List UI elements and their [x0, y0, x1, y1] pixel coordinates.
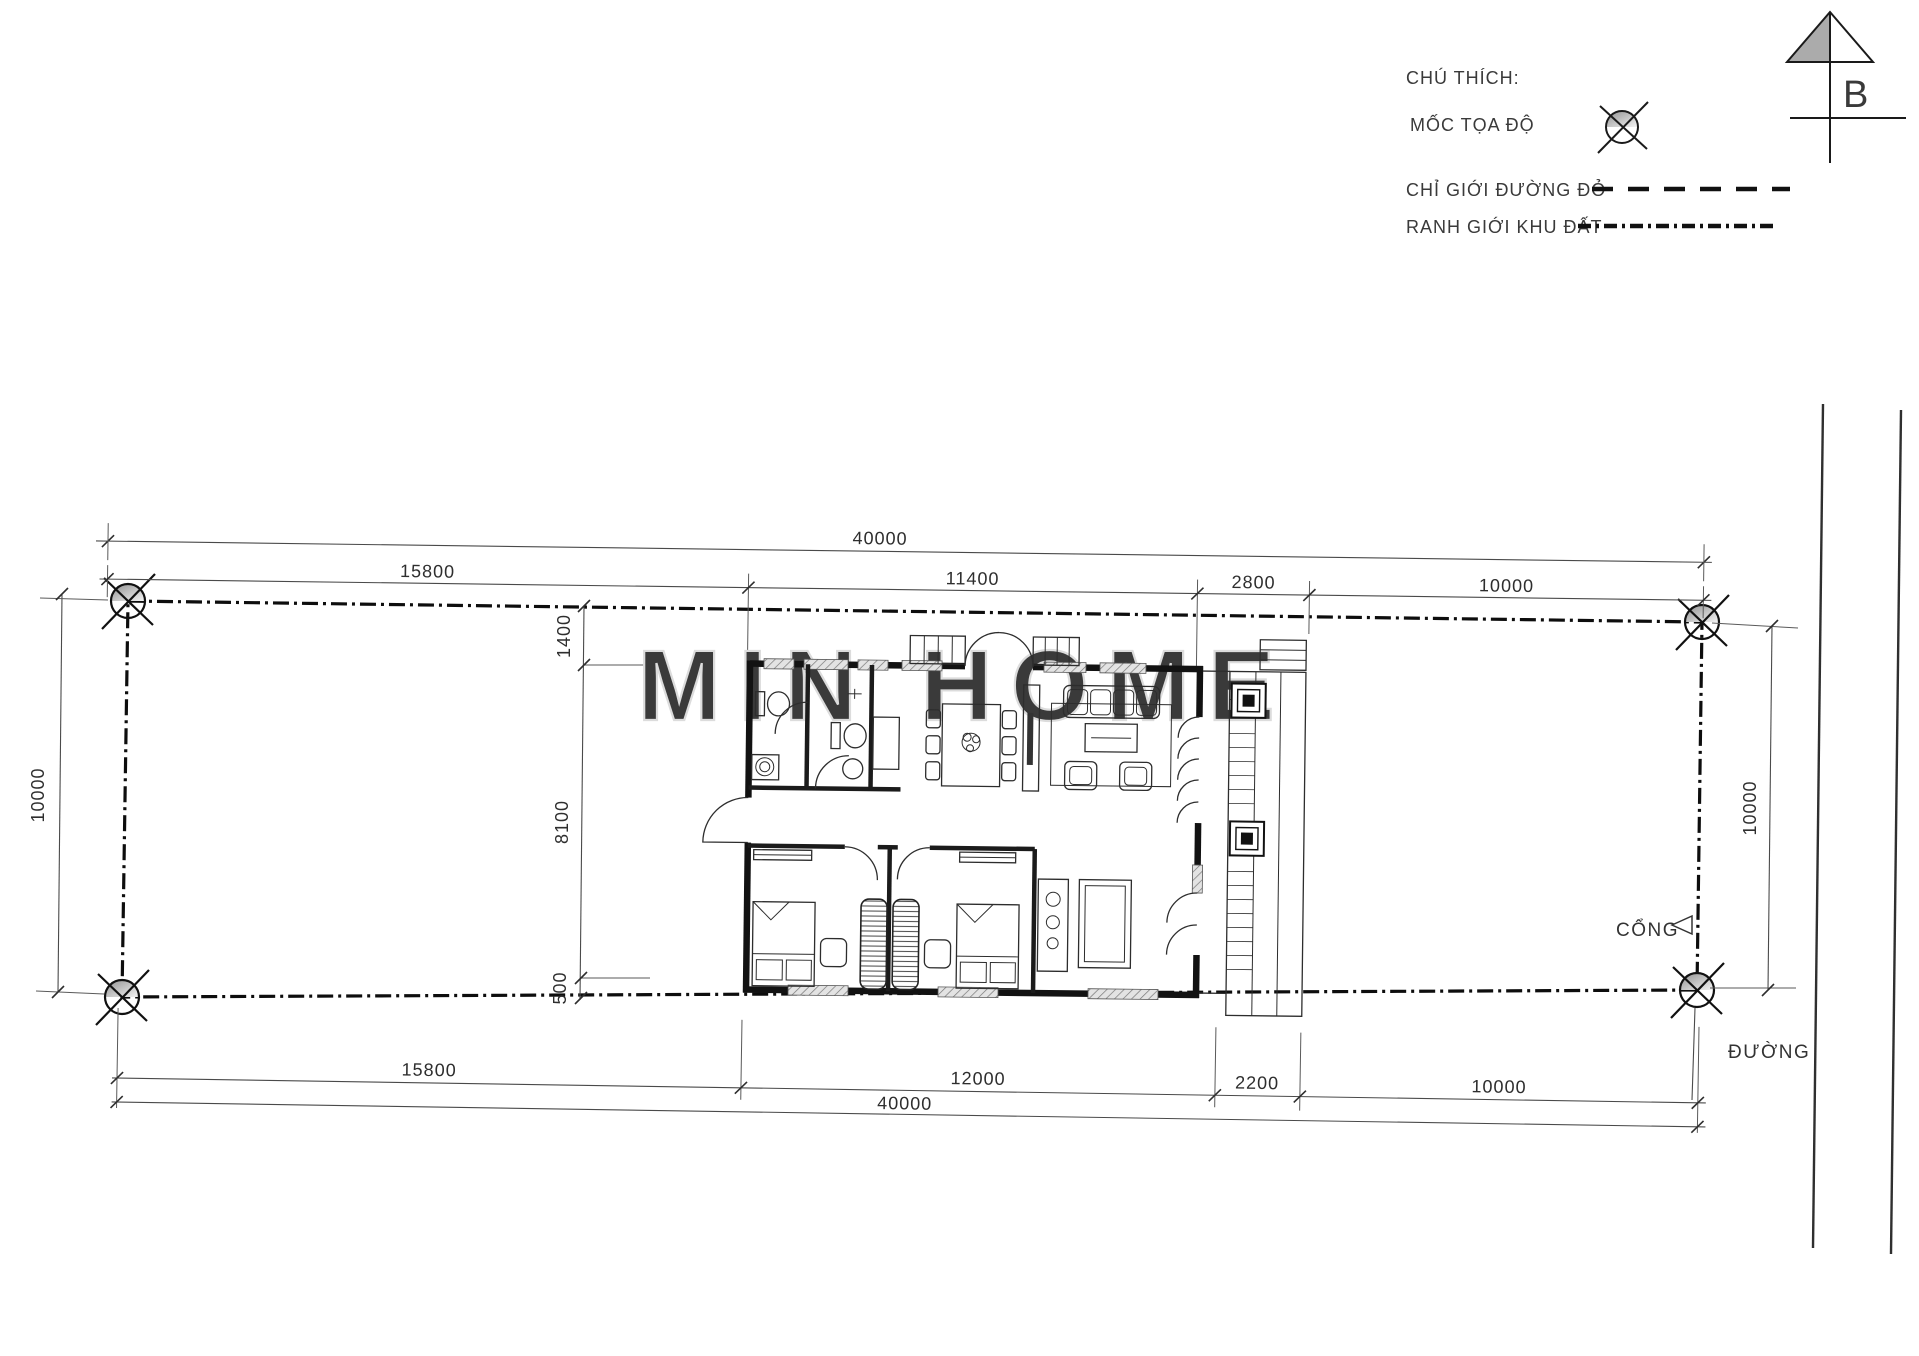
dim-left-side: 10000	[28, 767, 48, 822]
dim-top-seg-2: 11400	[946, 568, 1000, 589]
kitchen-island	[1078, 880, 1131, 969]
bedroom-1	[752, 846, 878, 988]
dim-bottom-seg-4: 10000	[1471, 1076, 1526, 1097]
legend-item-red-line-label: CHỈ GIỚI ĐƯỜNG ĐỎ	[1406, 179, 1606, 200]
dim-house-depth: 8100	[552, 800, 572, 844]
dim-right-side: 10000	[1740, 780, 1760, 835]
burner	[1046, 892, 1060, 906]
corner-marker-bottom-right	[1671, 963, 1724, 1100]
legend: CHÚ THÍCH: MỐC TỌA ĐỘ CHỈ GIỚI ĐƯỜNG ĐỎ …	[1406, 67, 1790, 237]
pillow	[960, 962, 986, 982]
bedroom1-door-arc	[844, 847, 877, 880]
road-edge-line-right	[1891, 410, 1901, 1254]
legend-item-land-boundary-label: RANH GIỚI KHU ĐẤT	[1406, 216, 1602, 237]
dimension-right: 10000	[1710, 620, 1798, 996]
dim-setback-top: 1400	[554, 614, 574, 658]
ornate-column	[1231, 683, 1265, 717]
site-plan-canvas: CHÚ THÍCH: MỐC TỌA ĐỘ CHỈ GIỚI ĐƯỜNG ĐỎ …	[0, 0, 1919, 1356]
window	[1044, 662, 1086, 673]
dim-setback-bottom: 500	[550, 971, 570, 1004]
dim-bottom-seg-2: 12000	[950, 1068, 1005, 1089]
desk-chair	[924, 940, 950, 968]
dim-bottom-seg-1: 15800	[401, 1059, 456, 1080]
window	[804, 659, 848, 670]
gate-label: CỔNG	[1616, 919, 1679, 941]
corner-marker-bottom-left	[96, 970, 149, 1025]
kitchen-counter	[1037, 879, 1068, 971]
north-arrow: B	[1787, 12, 1906, 163]
burner	[1047, 938, 1058, 949]
corner-marker-top-right	[1676, 595, 1729, 650]
legend-title: CHÚ THÍCH:	[1406, 67, 1520, 88]
bed	[752, 902, 815, 987]
road-edge-line-left	[1813, 404, 1823, 1248]
dimension-left: 10000	[28, 588, 108, 998]
bedroom2-door-arc	[897, 847, 929, 879]
window	[1100, 663, 1146, 674]
dim-top-seg-3: 2800	[1231, 572, 1275, 593]
pillow	[990, 963, 1015, 983]
tv	[1027, 713, 1034, 765]
sink	[843, 759, 863, 779]
gate-label-group: CỔNG	[1616, 916, 1692, 941]
legend-item-survey-marker-label: MỐC TỌA ĐỘ	[1410, 114, 1535, 135]
chair	[1002, 763, 1016, 781]
dim-top-seg-1: 15800	[400, 561, 455, 582]
dim-top-seg-4: 10000	[1479, 575, 1534, 596]
ornate-column	[1230, 821, 1264, 855]
window	[764, 659, 794, 669]
north-label: B	[1843, 74, 1868, 116]
bed	[956, 904, 1019, 989]
kitchen	[1037, 879, 1131, 972]
pillow	[756, 960, 782, 980]
dimension-bottom: 15800 12000 2200 10000 40000	[111, 1002, 1707, 1133]
dim-bottom-seg-3: 2200	[1235, 1073, 1279, 1094]
survey-marker-icon	[1598, 102, 1648, 153]
window	[1192, 865, 1202, 893]
desk-chair	[820, 938, 846, 966]
chair	[926, 762, 940, 780]
dim-bottom-total: 40000	[877, 1093, 932, 1114]
dim-top-total: 40000	[852, 528, 907, 549]
burner	[1046, 916, 1059, 929]
pillow	[786, 960, 811, 980]
window	[1088, 989, 1158, 1000]
side-door-arc	[703, 797, 749, 843]
window	[902, 660, 942, 670]
road-label: ĐƯỜNG	[1728, 1041, 1810, 1063]
